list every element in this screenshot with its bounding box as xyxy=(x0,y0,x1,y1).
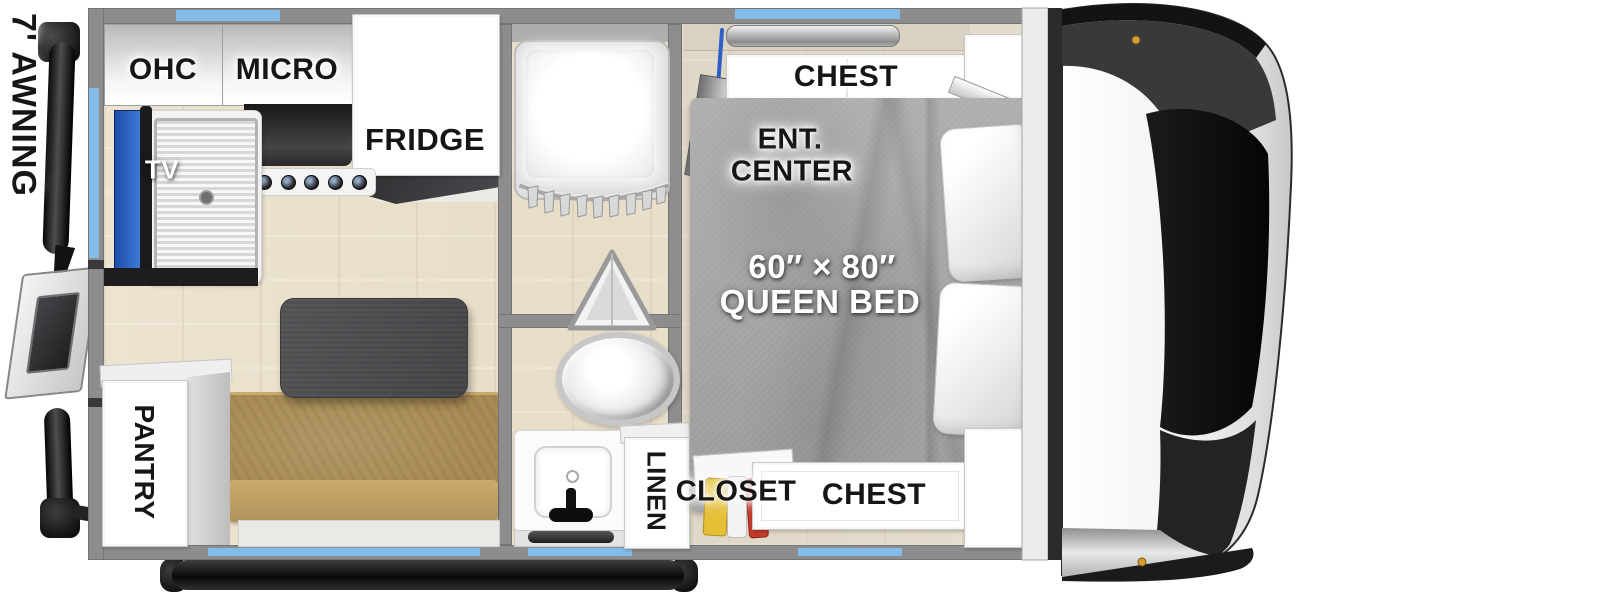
kitchen-tv-label: TV xyxy=(145,155,179,186)
nose-window xyxy=(1146,109,1269,436)
bed-size-label: 60″ × 80″ xyxy=(748,248,895,286)
camper-front-wall-seal xyxy=(1048,8,1062,560)
door-frame-top xyxy=(88,260,104,269)
overhead-cabinet-label: OHC xyxy=(129,53,197,87)
burner-knob-icon xyxy=(304,175,319,190)
window-bottom-bedroom xyxy=(798,548,902,556)
burner-knob-icon xyxy=(328,175,343,190)
bath-step-tread xyxy=(528,531,614,543)
chest-bottom-label: CHEST xyxy=(822,478,926,512)
window-left-kitchen xyxy=(89,88,99,258)
awning-roller-tube xyxy=(172,560,684,590)
ent-center-label-line1: ENT. xyxy=(758,124,823,157)
awning-length-label: 7' AWNING xyxy=(4,13,43,197)
marker-light-top-icon xyxy=(1132,36,1140,44)
camper-nose xyxy=(1018,0,1318,593)
window-bottom-bath xyxy=(528,548,632,556)
floorplan-diagram: 7' AWNING OHC MICRO FRIDGE TV PANTRY LIN… xyxy=(0,0,1600,593)
bath-sink-drain xyxy=(566,470,579,483)
wall-kitchen-bath xyxy=(498,24,512,545)
camper-front-wall xyxy=(1022,8,1048,560)
sink-drain xyxy=(199,190,214,205)
window-top-kitchen xyxy=(176,10,280,21)
window-top-bedroom xyxy=(735,9,900,19)
linen-label: LINEN xyxy=(641,451,672,532)
kitchen-tv-frame xyxy=(140,106,152,272)
window-bottom-dinette xyxy=(208,548,480,556)
bed-type-label: QUEEN BED xyxy=(720,283,921,321)
kitchen-tv-screen xyxy=(114,110,142,270)
ent-center-tv-cylinder xyxy=(726,25,900,47)
chest-top-label: CHEST xyxy=(794,60,898,94)
microwave-label: MICRO xyxy=(236,53,339,87)
dinette-table xyxy=(280,298,468,398)
cooktop xyxy=(248,168,376,196)
entry-door-open xyxy=(4,266,100,399)
dinette-bench-seat xyxy=(228,480,498,522)
entry-door-window xyxy=(26,292,80,374)
shower-curtain xyxy=(514,168,674,230)
dinette-bench-base xyxy=(238,520,500,547)
ent-center-label-line2: CENTER xyxy=(731,156,853,189)
toilet xyxy=(556,332,680,426)
fridge-label: FRIDGE xyxy=(365,122,485,158)
closet-label: CLOSET xyxy=(676,476,797,509)
bath-faucet-handle xyxy=(549,508,593,522)
pantry-side-face xyxy=(186,372,230,545)
bath-bifold-door xyxy=(566,248,658,332)
pantry-label: PANTRY xyxy=(128,405,160,520)
cabinet-shadow-strip xyxy=(104,268,258,286)
marker-light-bottom-icon xyxy=(1138,558,1146,566)
burner-knob-icon xyxy=(352,175,367,190)
awning-arm-top xyxy=(42,42,75,255)
burner-knob-icon xyxy=(281,175,296,190)
shower-pan xyxy=(526,50,654,178)
